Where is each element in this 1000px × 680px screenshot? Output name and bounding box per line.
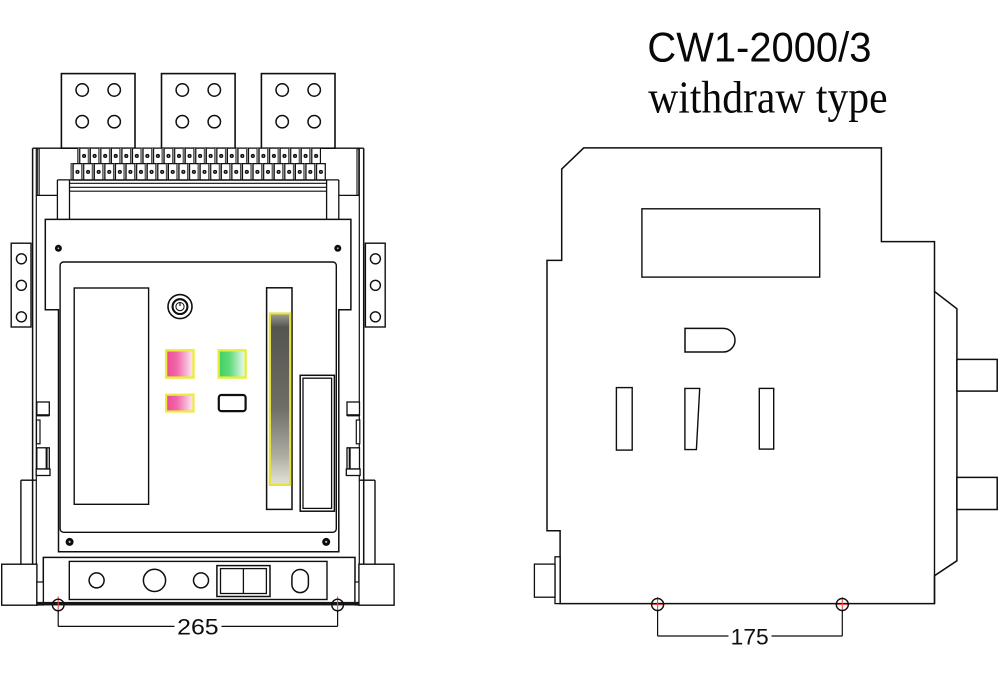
- svg-text:withdraw type: withdraw type: [648, 71, 887, 122]
- svg-text:265: 265: [177, 614, 219, 639]
- svg-text:CW1-2000/3: CW1-2000/3: [647, 23, 871, 70]
- svg-text:175: 175: [731, 624, 769, 649]
